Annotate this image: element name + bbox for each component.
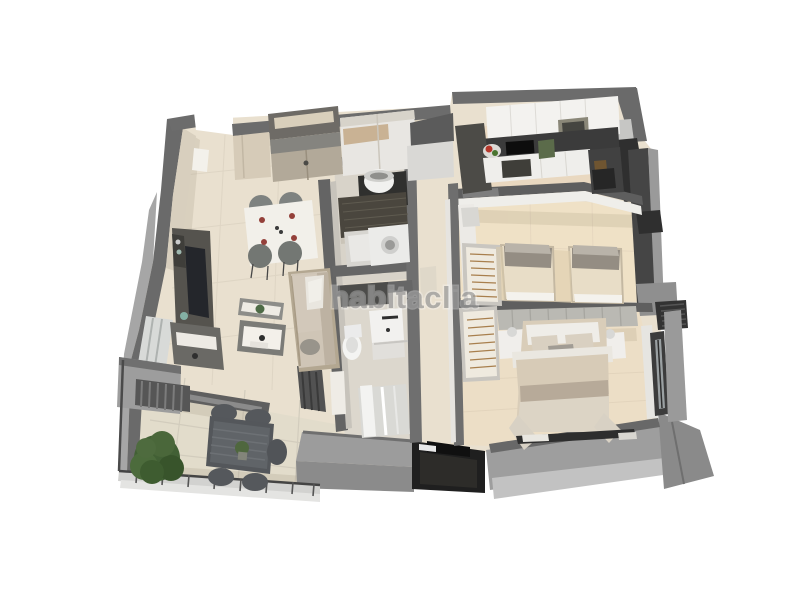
svg-text:habitaclia: habitaclia bbox=[330, 280, 478, 315]
